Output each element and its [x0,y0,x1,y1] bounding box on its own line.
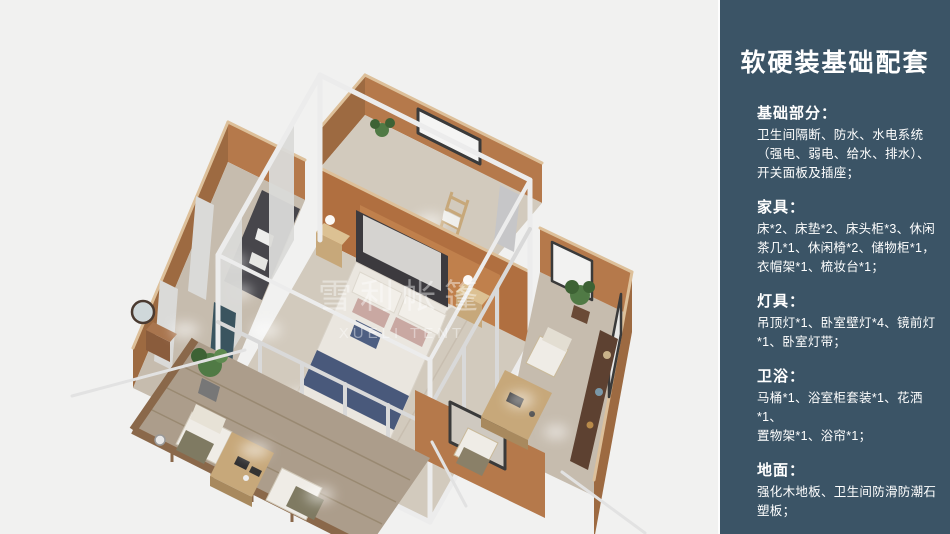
spec-section-flooring: 地面： 强化木地板、卫生间防滑防潮石 塑板； [757,459,944,521]
section-body: 吊顶灯*1、卧室壁灯*4、镜前灯 *1、卧室灯带； [757,314,944,352]
spec-section-furniture: 家具： 床*2、床垫*2、床头柜*3、休闲 茶几*1、休闲椅*2、储物柜*1， … [757,196,944,277]
spec-sections: 基础部分： 卫生间隔断、防水、水电系统 （强电、弱电、给水、排水）、 开关面板及… [720,102,950,521]
vanity-mirror [132,301,154,323]
spec-section-basics: 基础部分： 卫生间隔断、防水、水电系统 （强电、弱电、给水、排水）、 开关面板及… [757,102,944,183]
watermark-cn: 雪利帐篷 [318,278,486,316]
sidebar-title: 软硬装基础配套 [724,48,946,78]
watermark-en: XUELI TENT [339,325,465,342]
section-body: 床*2、床垫*2、床头柜*3、休闲 茶几*1、休闲椅*2、储物柜*1， 衣帽架*… [757,220,944,277]
section-heading: 卫浴： [757,365,944,386]
deck-lantern [155,435,165,445]
section-body: 卫生间隔断、防水、水电系统 （强电、弱电、给水、排水）、 开关面板及插座； [757,126,944,183]
presentation-slide: 雪利帐篷 XUELI TENT 软硬装基础配套 基础部分： 卫生间隔断、防水、水… [0,0,950,534]
watermark: 雪利帐篷 XUELI TENT [318,278,486,342]
section-heading: 家具： [757,196,944,217]
floorplan-3d-render: 雪利帐篷 XUELI TENT [0,0,718,534]
section-heading: 灯具： [757,290,944,311]
spec-sidebar: 软硬装基础配套 基础部分： 卫生间隔断、防水、水电系统 （强电、弱电、给水、排水… [718,0,950,534]
bedside-lamp [325,215,335,225]
section-heading: 基础部分： [757,102,944,123]
section-body: 马桶*1、浴室柜套装*1、花洒*1、 置物架*1、浴帘*1； [757,389,944,446]
section-heading: 地面： [757,459,944,480]
section-body: 强化木地板、卫生间防滑防潮石 塑板； [757,483,944,521]
floorplan-render-area: 雪利帐篷 XUELI TENT [0,0,718,534]
spec-section-lighting: 灯具： 吊顶灯*1、卧室壁灯*4、镜前灯 *1、卧室灯带； [757,290,944,352]
spec-section-bathroom: 卫浴： 马桶*1、浴室柜套装*1、花洒*1、 置物架*1、浴帘*1； [757,365,944,446]
